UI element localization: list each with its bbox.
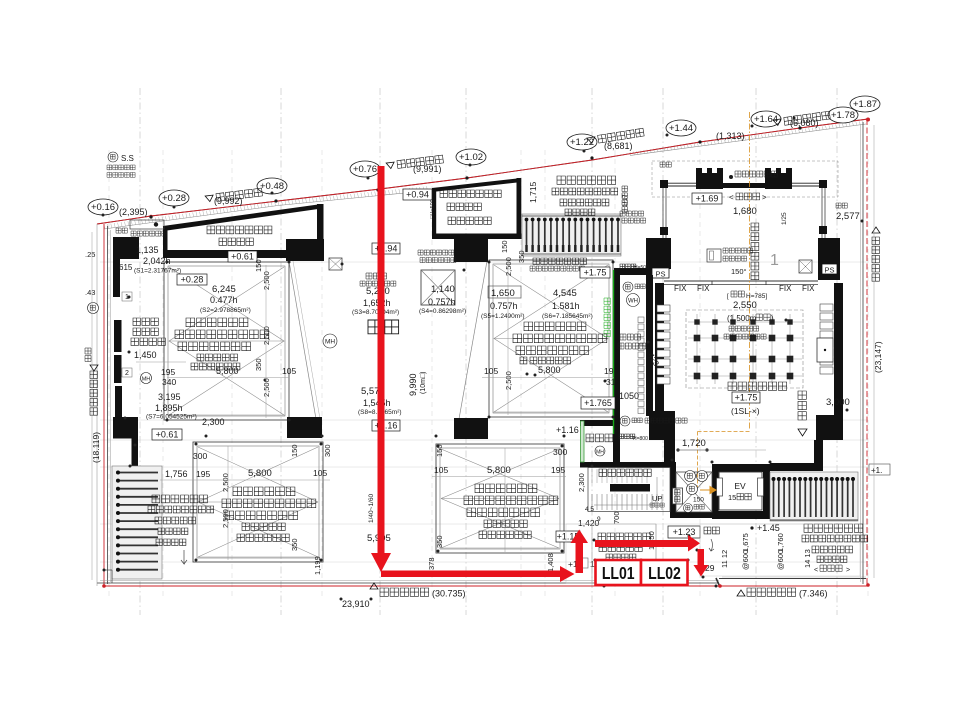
svg-text:150: 150 bbox=[435, 444, 444, 457]
svg-text:350: 350 bbox=[517, 250, 526, 263]
svg-text:H=785]: H=785] bbox=[746, 293, 767, 300]
svg-text:15: 15 bbox=[728, 493, 736, 502]
svg-text:+0.61: +0.61 bbox=[156, 430, 179, 440]
svg-text:5,800: 5,800 bbox=[538, 365, 561, 375]
svg-text:1,652h: 1,652h bbox=[363, 298, 391, 308]
svg-text:FIX: FIX bbox=[802, 284, 815, 293]
svg-text:150°: 150° bbox=[731, 267, 747, 276]
svg-text:2,300: 2,300 bbox=[577, 473, 586, 492]
svg-text:350: 350 bbox=[254, 358, 263, 371]
svg-text:1,545h: 1,545h bbox=[363, 398, 391, 408]
svg-text:14 13: 14 13 bbox=[803, 549, 812, 568]
svg-text:1,680: 1,680 bbox=[733, 206, 757, 217]
svg-text:0.757h: 0.757h bbox=[428, 297, 456, 307]
svg-text:(23,147): (23,147) bbox=[873, 341, 883, 373]
svg-text:EV: EV bbox=[734, 481, 746, 491]
svg-text:(10m□): (10m□) bbox=[420, 371, 427, 394]
svg-text:11 12: 11 12 bbox=[720, 550, 729, 568]
svg-text:+1.87: +1.87 bbox=[853, 99, 877, 110]
svg-text:+0.94: +0.94 bbox=[406, 190, 429, 200]
svg-text:(30.735): (30.735) bbox=[432, 589, 466, 599]
svg-text:(2,395): (2,395) bbox=[119, 207, 148, 217]
svg-text:+1.02: +1.02 bbox=[459, 152, 483, 163]
svg-text:1,715: 1,715 bbox=[528, 181, 538, 203]
svg-text:FIX: FIX bbox=[779, 284, 792, 293]
svg-text:4 5: 4 5 bbox=[585, 506, 594, 513]
svg-text:H=800: H=800 bbox=[633, 436, 648, 442]
svg-text:1,450: 1,450 bbox=[134, 350, 157, 360]
svg-text:2,300: 2,300 bbox=[202, 417, 225, 427]
svg-text:+0.61: +0.61 bbox=[231, 252, 254, 262]
svg-text:105: 105 bbox=[282, 366, 296, 376]
svg-text:2,500: 2,500 bbox=[221, 509, 230, 528]
svg-text:): ) bbox=[771, 314, 774, 323]
svg-text:+0.28: +0.28 bbox=[162, 193, 186, 204]
svg-text:MH: MH bbox=[142, 377, 151, 383]
svg-text:1,675: 1,675 bbox=[741, 533, 750, 552]
svg-text:+1.69: +1.69 bbox=[696, 194, 719, 204]
svg-text:(S1=2.31767m²): (S1=2.31767m²) bbox=[134, 268, 181, 275]
svg-text:PS: PS bbox=[824, 266, 834, 275]
svg-text:MH: MH bbox=[325, 339, 335, 346]
svg-text:+1.22: +1.22 bbox=[570, 137, 594, 148]
svg-text:(1SL-×): (1SL-×) bbox=[731, 406, 760, 416]
svg-text:19: 19 bbox=[604, 366, 614, 376]
svg-text:+1.75: +1.75 bbox=[584, 268, 607, 278]
svg-text:+0.76: +0.76 bbox=[353, 164, 377, 175]
svg-text:3,195: 3,195 bbox=[158, 392, 181, 402]
svg-text:0.757h: 0.757h bbox=[490, 301, 518, 311]
svg-text:350: 350 bbox=[290, 538, 299, 551]
svg-text:1,408: 1,408 bbox=[546, 553, 555, 572]
svg-text:150: 150 bbox=[500, 240, 509, 253]
svg-text:2,500: 2,500 bbox=[262, 378, 271, 397]
svg-text:1,650: 1,650 bbox=[491, 288, 515, 299]
svg-text:31: 31 bbox=[606, 377, 616, 387]
svg-text:4,545: 4,545 bbox=[553, 288, 577, 299]
svg-text:+0.48: +0.48 bbox=[260, 181, 284, 192]
svg-text:2: 2 bbox=[125, 370, 129, 377]
svg-text:300: 300 bbox=[553, 447, 567, 457]
svg-text:(8,681): (8,681) bbox=[604, 141, 633, 151]
svg-text:195: 195 bbox=[551, 465, 565, 475]
svg-text:1,760: 1,760 bbox=[776, 533, 785, 552]
svg-text:FIX: FIX bbox=[674, 284, 687, 293]
svg-text:WH: WH bbox=[628, 299, 638, 305]
svg-text:2,500: 2,500 bbox=[262, 326, 271, 345]
svg-text:<: < bbox=[729, 193, 734, 202]
svg-text:2,550: 2,550 bbox=[733, 300, 757, 311]
svg-text:H=500: H=500 bbox=[634, 265, 649, 271]
svg-text:23,910: 23,910 bbox=[342, 599, 370, 609]
svg-text:700: 700 bbox=[612, 511, 621, 524]
svg-text:3,000: 3,000 bbox=[826, 397, 850, 408]
svg-text:1.581h: 1.581h bbox=[552, 301, 580, 311]
svg-text:(S3=8.70504m²): (S3=8.70504m²) bbox=[352, 309, 399, 316]
svg-text:+1.78: +1.78 bbox=[831, 110, 855, 121]
svg-text:<: < bbox=[814, 567, 818, 574]
svg-text:5,800: 5,800 bbox=[248, 468, 272, 479]
svg-text:+1.75: +1.75 bbox=[735, 393, 758, 403]
svg-text:300: 300 bbox=[323, 444, 332, 457]
svg-text:(S5=1.2490m²): (S5=1.2490m²) bbox=[481, 313, 525, 320]
svg-text:(9,991): (9,991) bbox=[413, 164, 442, 174]
svg-text:PS: PS bbox=[655, 270, 665, 279]
svg-text:340: 340 bbox=[162, 377, 176, 387]
svg-text:1,756: 1,756 bbox=[165, 469, 188, 479]
svg-text:9: 9 bbox=[597, 516, 601, 523]
svg-text:5,800: 5,800 bbox=[216, 366, 239, 376]
svg-text:9,990: 9,990 bbox=[408, 373, 418, 396]
svg-text:FIX: FIX bbox=[697, 284, 710, 293]
svg-text:>: > bbox=[762, 193, 767, 202]
svg-text:MH: MH bbox=[596, 450, 604, 456]
svg-text:(S2=2.978865m²): (S2=2.978865m²) bbox=[200, 307, 251, 314]
svg-text:LL01: LL01 bbox=[602, 563, 635, 583]
svg-text:350: 350 bbox=[435, 535, 444, 548]
svg-text:(S4=0.86298m²): (S4=0.86298m²) bbox=[419, 308, 466, 315]
svg-text:615: 615 bbox=[119, 263, 133, 272]
svg-text:(7.346): (7.346) bbox=[799, 589, 828, 599]
svg-text:1,720: 1,720 bbox=[682, 438, 706, 449]
svg-text:2,500: 2,500 bbox=[504, 257, 513, 276]
svg-text:5,800: 5,800 bbox=[487, 465, 511, 476]
svg-text:@600: @600 bbox=[741, 550, 750, 570]
svg-text:S.S: S.S bbox=[121, 154, 134, 163]
svg-text:+1.765: +1.765 bbox=[584, 398, 612, 408]
svg-text:+1.44: +1.44 bbox=[669, 123, 693, 134]
svg-text:105: 105 bbox=[484, 366, 498, 376]
svg-text:105: 105 bbox=[313, 468, 327, 478]
svg-text:1050: 1050 bbox=[619, 391, 639, 401]
svg-text:+1.45: +1.45 bbox=[757, 523, 780, 533]
svg-text:+1.: +1. bbox=[871, 466, 882, 475]
svg-text:(18.119): (18.119) bbox=[91, 432, 101, 463]
svg-text:(S6=7.185645m²): (S6=7.185645m²) bbox=[542, 313, 593, 320]
svg-text:2,577: 2,577 bbox=[836, 211, 860, 222]
svg-text:150: 150 bbox=[254, 259, 263, 272]
svg-text:[: [ bbox=[727, 293, 729, 300]
svg-text:6,245: 6,245 bbox=[212, 284, 236, 295]
svg-text:(1,500m: (1,500m bbox=[727, 314, 757, 323]
svg-text:105: 105 bbox=[434, 465, 448, 475]
svg-text:1/40~1/60: 1/40~1/60 bbox=[368, 494, 375, 523]
svg-text:2,500: 2,500 bbox=[262, 271, 271, 290]
svg-text:+1.23: +1.23 bbox=[673, 527, 696, 537]
svg-text:1,135: 1,135 bbox=[136, 245, 159, 255]
svg-text:.25: .25 bbox=[85, 250, 95, 259]
svg-text:1,895h: 1,895h bbox=[155, 403, 183, 413]
svg-text:195: 195 bbox=[161, 367, 175, 377]
svg-text:1/17: 1/17 bbox=[622, 194, 629, 207]
svg-text:+0.16: +0.16 bbox=[91, 202, 115, 213]
svg-text:300: 300 bbox=[193, 451, 207, 461]
svg-text:+0.28: +0.28 bbox=[181, 275, 204, 285]
svg-text:1: 1 bbox=[770, 252, 779, 269]
svg-text:0.477h: 0.477h bbox=[210, 295, 238, 305]
svg-text:2,500: 2,500 bbox=[221, 473, 230, 492]
svg-text:(S7=6.054525m²): (S7=6.054525m²) bbox=[146, 414, 197, 421]
svg-text:150: 150 bbox=[290, 444, 299, 457]
svg-text:+1.16: +1.16 bbox=[556, 425, 579, 435]
svg-text:150: 150 bbox=[693, 497, 704, 504]
svg-text:LL02: LL02 bbox=[648, 563, 681, 583]
svg-text:UP: UP bbox=[652, 494, 662, 503]
svg-text:1,140: 1,140 bbox=[431, 284, 455, 295]
svg-text:1/25: 1/25 bbox=[781, 212, 788, 225]
svg-text:>: > bbox=[846, 567, 850, 574]
svg-text:@600: @600 bbox=[776, 550, 785, 570]
svg-text:.43: .43 bbox=[85, 288, 95, 297]
svg-text:(1,313): (1,313) bbox=[716, 131, 745, 141]
svg-text:2,500: 2,500 bbox=[504, 371, 513, 390]
svg-text:378: 378 bbox=[427, 557, 436, 570]
svg-text:□H=500: □H=500 bbox=[430, 199, 436, 219]
svg-text:195: 195 bbox=[196, 469, 210, 479]
